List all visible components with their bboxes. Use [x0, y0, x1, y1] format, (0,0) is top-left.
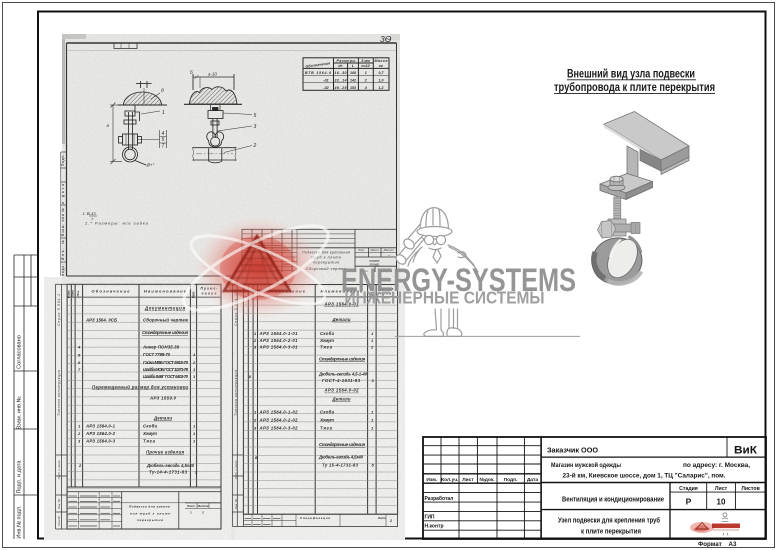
svg-text:к плите перекрытия: к плите перекрытия: [581, 529, 641, 536]
svg-text:Листов: Листов: [741, 486, 760, 492]
svg-text:Н.контр: Н.контр: [425, 524, 444, 530]
svg-text:Подп.: Подп.: [504, 477, 518, 483]
svg-text:Лист: Лист: [462, 477, 474, 483]
svg-text:Стадия: Стадия: [679, 486, 698, 492]
svg-text:Формат: Формат: [698, 541, 722, 548]
svg-text:Взам. инв.№: Взам. инв.№: [17, 396, 23, 429]
svg-text:Внешний вид узла подвески: Внешний вид узла подвески: [567, 69, 695, 81]
svg-text:трубопровода к плите перекрыти: трубопровода к плите перекрытия: [554, 82, 715, 94]
svg-text:Вентиляция и кондиционирование: Вентиляция и кондиционирование: [562, 497, 664, 504]
svg-text:Инв.№ подл.: Инв.№ подл.: [17, 505, 23, 539]
svg-text:ГИП: ГИП: [425, 514, 435, 520]
svg-text:10: 10: [717, 498, 726, 507]
svg-text:№док.: №док.: [479, 477, 495, 483]
svg-text:А3: А3: [729, 541, 737, 548]
svg-text:Дата: Дата: [527, 477, 539, 483]
svg-text:ИНЖЕНЕРНЫЕ СИСТЕМЫ: ИНЖЕНЕРНЫЕ СИСТЕМЫ: [345, 287, 545, 307]
svg-text:Разработал: Разработал: [425, 495, 454, 502]
svg-text:Лист: Лист: [715, 486, 728, 492]
svg-text:Кол.уч.: Кол.уч.: [441, 477, 459, 483]
svg-text:23-й км, Киевское шоссе, дом 1: 23-й км, Киевское шоссе, дом 1, ТЦ "Сала…: [563, 472, 726, 480]
svg-text:Р: Р: [686, 497, 692, 507]
svg-text:Магазин мужской одежды: Магазин мужской одежды: [551, 461, 621, 469]
svg-text:ВиК: ВиК: [734, 445, 757, 457]
svg-text:Изм.: Изм.: [426, 477, 437, 483]
svg-text:Узел подвески для крепления тр: Узел подвески для крепления труб: [558, 517, 661, 525]
svg-text:Заказчик ООО: Заказчик ООО: [547, 446, 598, 455]
svg-text:Подп. и дата: Подп. и дата: [17, 460, 23, 494]
svg-text:Согласовано: Согласовано: [17, 335, 23, 369]
svg-text:по адресу: г. Москва,: по адресу: г. Москва,: [683, 462, 750, 469]
